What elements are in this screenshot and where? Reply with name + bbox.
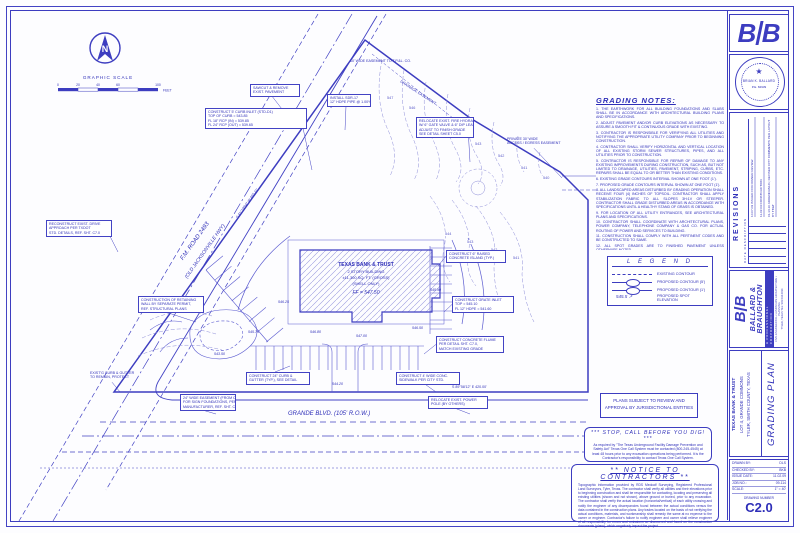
firm-address: TYLER, TEXAS TEL: 903.534.0034 (781, 289, 784, 330)
revisions-entries: 10.07.09 ISSUED FOR OWNER REVIEW11.02.09… (750, 117, 777, 217)
sheet-info-row: ISSUE DATE:11.02.09 (732, 474, 786, 481)
revision-empty-row (748, 219, 786, 227)
legend-row-proposed-contour-1: PROPOSED CONTOUR (1') (612, 286, 708, 294)
contour-elevation-label: 543 (466, 240, 474, 244)
bb-logo-icon: BB (737, 18, 780, 49)
engineer-seal: ★ BRIAN K. BALLARD P.E. 84939 (729, 54, 789, 110)
contour-elevation-label: 540 (542, 176, 550, 180)
notice-body: Topographic information provided by RDS … (578, 483, 712, 528)
grading-notes: GRADING NOTES: 1. THE EARTHWORK FOR ALL … (596, 96, 724, 250)
spot-elevation-symbol: 545.5 ↗ (612, 294, 652, 302)
sheet-info-rows: DRAWN BY:DLSCHECKED BY:BKBISSUE DATE:11.… (730, 460, 788, 495)
grading-note: 9. FOR LOCATION OF ALL UTILITY ENTRANCES… (596, 211, 724, 219)
notice-title: ** NOTICE TO CONTRACTORS ** (578, 467, 712, 481)
grading-notes-list: 1. THE EARTHWORK FOR ALL BUILDING FOUNDA… (596, 107, 724, 250)
project-name: TEXAS BANK & TRUST LOT 4, GRANDE COMMONS… (732, 355, 751, 454)
sheet-info-block: DRAWN BY:DLSCHECKED BY:BKBISSUE DATE:11.… (729, 459, 789, 522)
legend-title: L E G E N D (612, 259, 708, 267)
sheet-info-row: DRAWN BY:DLS (732, 461, 786, 468)
seal-star-icon: ★ (730, 67, 788, 76)
plan-callout: EXIST'G CURB & GUTTERTO REMAIN, PROTECT (88, 370, 140, 381)
plan-callout: RECONSTRUCT EXIST. DRIVEAPPROACH PER TXD… (46, 220, 112, 237)
proposed-contour5-symbol (612, 278, 652, 286)
revision-empty-row (748, 249, 786, 257)
stop-call-title: *** STOP, CALL BEFORE YOU DIG! *** (590, 430, 706, 442)
grading-note: 12. ALL SPOT GRADES ARE TO FINISHED PAVE… (596, 244, 724, 250)
firm-block: BB BALLARD & BRAUGHTON A PROFESSIONAL CO… (729, 270, 789, 348)
firm-tagline: A PROFESSIONAL CORPORATION (765, 271, 774, 347)
contour-elevation-label: 546 (408, 106, 416, 110)
plan-callout: 24" WIDE EASEMENT (FROM CURB)FOR SIGN FO… (180, 394, 236, 411)
contour-elevation-label: 541 (520, 166, 528, 170)
plan-callout: INSTALL SDR-1712" HDPE PIPE @ 1.00% (327, 94, 371, 107)
legend-row-proposed-contour-5: PROPOSED CONTOUR (5') (612, 278, 708, 286)
grading-note: 11. CONSTRUCTION SHALL COMPLY WITH ALL P… (596, 234, 724, 242)
revisions-empty-rows (748, 219, 786, 272)
plan-callout: CONSTRUCT CONCRETE FLUMEPER DETAIL SHT. … (436, 336, 504, 353)
plan-callout: CONSTRUCT 4' WIDE CONC.SIDEWALK PER CITY… (396, 372, 460, 385)
plan-callout: CONSTRUCT 24" CURB &GUTTER (TYP.), SEE D… (246, 372, 310, 385)
revisions-block: REVISIONS DATE DESCRIPTION 10.07.09 ISSU… (729, 112, 789, 268)
grading-note: 2. ADJUST PAVEMENT AND/OR CURB ELEVATION… (596, 121, 724, 129)
plan-callout: PRIVATE 30' WIDEACCESS / EGRESS EASEMENT (505, 136, 567, 147)
project-block: TEXAS BANK & TRUST LOT 4, GRANDE COMMONS… (729, 350, 789, 457)
revision-empty-row (748, 234, 786, 242)
grading-note: 6. EXISTING GRADE CONTOURS INTERVAL SHOW… (596, 177, 724, 181)
legend-row-existing-contour: EXISTING CONTOUR (612, 270, 708, 278)
grading-note: 3. CONTRACTOR IS RESPONSIBLE FOR VERIFYI… (596, 131, 724, 143)
spot-elevation-label: 546.50 (412, 326, 423, 330)
contour-elevation-label: 544 (444, 232, 452, 236)
grading-notes-title: GRADING NOTES: (596, 96, 724, 105)
revision-entry: 01.13.10 ADDENDUM #1; REVISED CITY COMME… (767, 117, 777, 217)
sheet-info-row: JOB NO.:09-114 (732, 481, 786, 488)
spot-elevation-label: 546.25 (278, 300, 289, 304)
seal-number: P.E. 84939 (730, 85, 788, 89)
sheet-title: GRADING PLAN (766, 355, 777, 454)
spot-elevation-label: 545.75 (248, 330, 259, 334)
stop-call-before-you-dig-box: *** STOP, CALL BEFORE YOU DIG! *** As re… (584, 427, 712, 462)
spot-elevation-label: 545.90 (430, 288, 441, 292)
contour-elevation-label: 542 (497, 154, 505, 158)
grading-note: 5. CONTRACTOR IS RESPONSIBLE FOR REPAIR … (596, 159, 724, 176)
plan-callout: RELOCATE EXIST. FIRE HYDRANTW/ 6" GATE V… (416, 117, 474, 138)
plan-callout: RELOCATE EXIST. POWERPOLE (BY OTHERS) (428, 396, 488, 409)
revision-empty-row (748, 242, 786, 250)
plan-callout: CONSTRUCT 6" RAISEDCONCRETE ISLAND (TYP.… (446, 250, 506, 263)
plan-callout: CONSTRUCT GRATE INLETTOP = 545.10FL 12" … (452, 296, 514, 313)
sheet-info-row: CHECKED BY:BKB (732, 468, 786, 475)
legend-row-spot-elevation: 545.5 ↗ PROPOSED SPOT ELEVATION (612, 294, 708, 302)
stop-call-body: As required by "The Texas Underground Fa… (590, 443, 706, 460)
revision-empty-row (748, 257, 786, 265)
contour-elevation-label: 547 (386, 96, 394, 100)
grading-note: 7. PROPOSED GRADE CONTOURS INTERVAL SHOW… (596, 183, 724, 187)
firm-name-2: BRAUGHTON (756, 284, 763, 333)
revisions-title: REVISIONS (733, 141, 740, 241)
project-block-divider (761, 351, 762, 456)
grading-note: 4. CONTRACTOR SHALL VERIFY HORIZONTAL AN… (596, 145, 724, 157)
bb-logo-icon-small: BB (732, 296, 749, 322)
grading-note: 8. ALL LANDSCAPED AREAS DISTURBED BY GRA… (596, 188, 724, 209)
spot-elevation-label: 543.50 (214, 352, 225, 356)
notice-to-contractors-box: ** NOTICE TO CONTRACTORS ** Topographic … (571, 464, 719, 522)
spot-elevation-label: 546.80 (310, 330, 321, 334)
existing-contour-symbol (612, 270, 652, 278)
spot-elevation-label: 544.20 (332, 382, 343, 386)
sheet-info-row: SCALE:1" = 40' (732, 487, 786, 494)
spot-elevation-label: 547.00 (356, 334, 367, 338)
firm-logo-box: BB (729, 14, 789, 52)
revision-entry: 11.02.09 CONSTRUCTION (759, 117, 765, 217)
grading-note: 1. THE EARTHWORK FOR ALL BUILDING FOUNDA… (596, 107, 724, 119)
plan-callout: SAWCUT & REMOVEEXIST. PAVEMENT (250, 84, 300, 97)
proposed-contour1-symbol (612, 286, 652, 294)
seal-name: BRIAN K. BALLARD (730, 79, 788, 83)
drawing-sheet: { "scalebar": { "title": "GRAPHIC SCALE"… (0, 0, 800, 533)
legend: L E G E N D EXISTING CONTOUR PROPOSED CO… (607, 256, 713, 306)
revision-entry: 10.07.09 ISSUED FOR OWNER REVIEW (750, 117, 756, 217)
plans-subject-note: PLANS SUBJECT TO REVIEW AND APPROVAL BY … (600, 393, 698, 418)
contour-elevation-label: 541 (512, 256, 520, 260)
drawing-number: C2.0 (730, 500, 788, 515)
contour-elevation-label: 543 (474, 142, 482, 146)
grading-note: 10. CONTRACTOR SHALL COORDINATE WITH ARC… (596, 220, 724, 232)
revision-empty-row (748, 227, 786, 235)
plan-callout: CONSTRUCT 5' CURB INLET (STD-D1)TOP OF C… (205, 108, 307, 129)
firm-block-content: BB BALLARD & BRAUGHTON A PROFESSIONAL CO… (730, 271, 787, 347)
plan-callout: CONSTRUCTION OF RETAININGWALL BY SEPARAT… (138, 296, 204, 313)
